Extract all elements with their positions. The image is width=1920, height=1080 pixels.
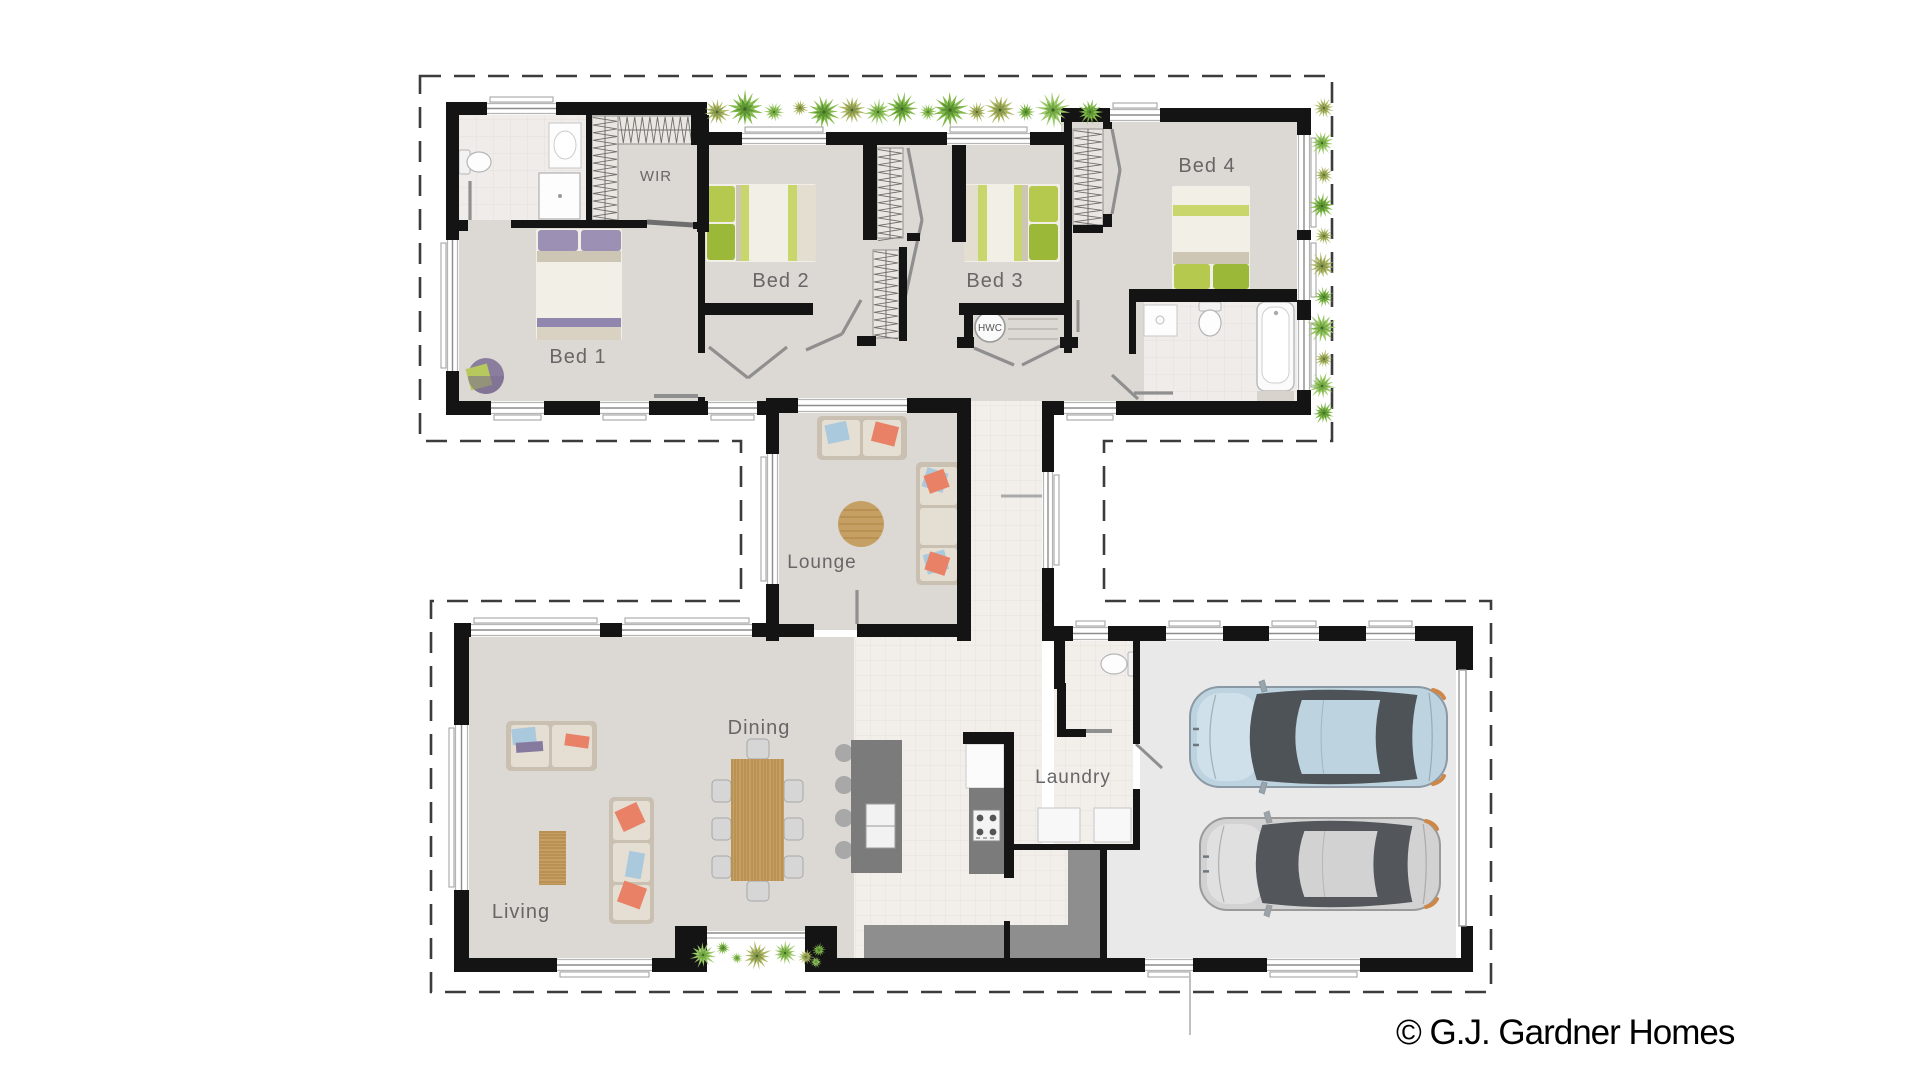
svg-text:Dining: Dining bbox=[728, 717, 791, 739]
svg-text:Living: Living bbox=[492, 901, 550, 923]
svg-text:Bed 1: Bed 1 bbox=[549, 346, 606, 368]
svg-text:Bed 4: Bed 4 bbox=[1178, 155, 1235, 177]
svg-text:Laundry: Laundry bbox=[1035, 767, 1111, 788]
svg-text:© G.J. Gardner Homes: © G.J. Gardner Homes bbox=[1396, 1013, 1735, 1052]
svg-text:Lounge: Lounge bbox=[787, 552, 856, 573]
svg-text:Bed 2: Bed 2 bbox=[752, 270, 809, 292]
svg-text:Bed 3: Bed 3 bbox=[966, 270, 1023, 292]
svg-text:WIR: WIR bbox=[640, 168, 672, 185]
svg-text:HWC: HWC bbox=[978, 323, 1002, 334]
